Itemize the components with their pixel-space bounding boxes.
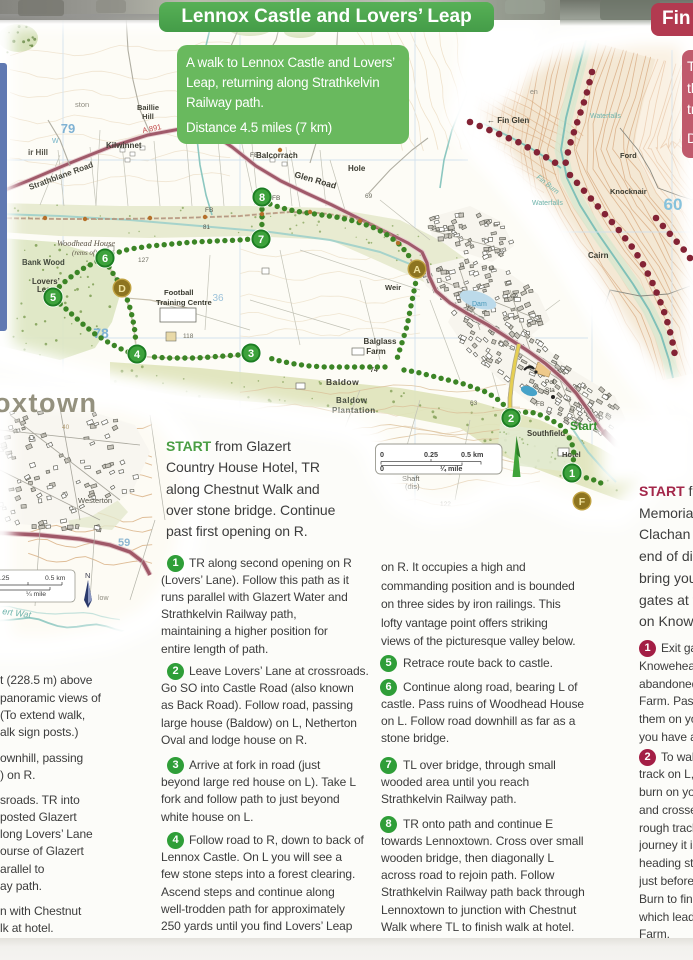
svg-text:6: 6 bbox=[102, 253, 108, 265]
svg-text:FB: FB bbox=[250, 152, 258, 159]
svg-text:low: low bbox=[98, 595, 109, 602]
svg-text:Southfield: Southfield bbox=[527, 429, 565, 438]
svg-text:Hole: Hole bbox=[348, 164, 366, 173]
svg-text:F: F bbox=[579, 496, 586, 508]
svg-text:Hill: Hill bbox=[142, 112, 154, 121]
svg-text:FB: FB bbox=[536, 401, 544, 408]
svg-text:2: 2 bbox=[508, 413, 514, 425]
svg-text:¼ mile: ¼ mile bbox=[26, 591, 46, 598]
svg-text:oxtown: oxtown bbox=[0, 388, 98, 418]
svg-text:D: D bbox=[118, 283, 126, 295]
svg-text:Balcorrach: Balcorrach bbox=[256, 151, 298, 160]
svg-text:Pol: Pol bbox=[545, 379, 555, 386]
svg-text:Waterfalls: Waterfalls bbox=[532, 200, 563, 207]
svg-text:Baldow: Baldow bbox=[326, 377, 359, 387]
svg-text:← Fin Glen: ← Fin Glen bbox=[487, 116, 529, 125]
svg-text:Farm: Farm bbox=[366, 347, 386, 356]
svg-text:0.5 km: 0.5 km bbox=[461, 450, 483, 459]
svg-text:5: 5 bbox=[50, 292, 56, 304]
svg-text:ir Hill: ir Hill bbox=[28, 148, 48, 157]
svg-text:.25: .25 bbox=[0, 575, 10, 582]
svg-text:Bank Wood: Bank Wood bbox=[22, 258, 65, 267]
svg-text:Waterfalls: Waterfalls bbox=[590, 113, 621, 120]
svg-text:Training Centre: Training Centre bbox=[156, 298, 212, 307]
svg-text:127: 127 bbox=[138, 257, 149, 264]
svg-text:40: 40 bbox=[62, 424, 70, 431]
svg-text:Sta: Sta bbox=[545, 387, 555, 394]
svg-text:69: 69 bbox=[365, 193, 373, 200]
svg-text:81: 81 bbox=[203, 224, 210, 231]
svg-text:1: 1 bbox=[569, 468, 575, 480]
svg-text:FB: FB bbox=[205, 207, 213, 214]
svg-text:36: 36 bbox=[212, 293, 224, 304]
svg-text:118: 118 bbox=[183, 333, 194, 340]
svg-text:4: 4 bbox=[134, 349, 141, 361]
svg-text:60: 60 bbox=[664, 195, 683, 214]
svg-text:59: 59 bbox=[118, 537, 130, 549]
svg-text:63: 63 bbox=[470, 400, 478, 407]
svg-text:Start: Start bbox=[570, 419, 597, 433]
svg-text:Football: Football bbox=[164, 288, 194, 297]
svg-text:Dam: Dam bbox=[472, 301, 487, 308]
svg-text:FB: FB bbox=[272, 195, 280, 202]
svg-text:A: A bbox=[413, 264, 421, 276]
svg-text:Baillie: Baillie bbox=[137, 103, 159, 112]
svg-text:3: 3 bbox=[248, 348, 254, 360]
svg-text:Westerton: Westerton bbox=[78, 496, 112, 505]
svg-text:Knocknair: Knocknair bbox=[610, 187, 647, 196]
svg-text:7: 7 bbox=[258, 234, 264, 246]
svg-text:(rems of): (rems of) bbox=[72, 249, 98, 257]
svg-text:Weir: Weir bbox=[385, 283, 401, 292]
svg-text:Kilwinnet: Kilwinnet bbox=[106, 141, 142, 150]
svg-text:79: 79 bbox=[61, 121, 75, 136]
svg-text:W: W bbox=[52, 138, 59, 145]
svg-text:Woodhead House: Woodhead House bbox=[57, 239, 115, 248]
svg-text:en: en bbox=[530, 89, 538, 96]
svg-text:N: N bbox=[85, 571, 90, 580]
svg-text:Balglass: Balglass bbox=[364, 337, 397, 346]
svg-text:Baldow: Baldow bbox=[336, 396, 368, 405]
svg-text:ston: ston bbox=[75, 100, 89, 109]
svg-text:8: 8 bbox=[259, 192, 265, 204]
svg-text:0.5 km: 0.5 km bbox=[45, 575, 66, 582]
svg-text:0.25: 0.25 bbox=[424, 450, 438, 459]
svg-text:Ford: Ford bbox=[620, 151, 637, 160]
svg-text:Cairn: Cairn bbox=[588, 251, 609, 260]
